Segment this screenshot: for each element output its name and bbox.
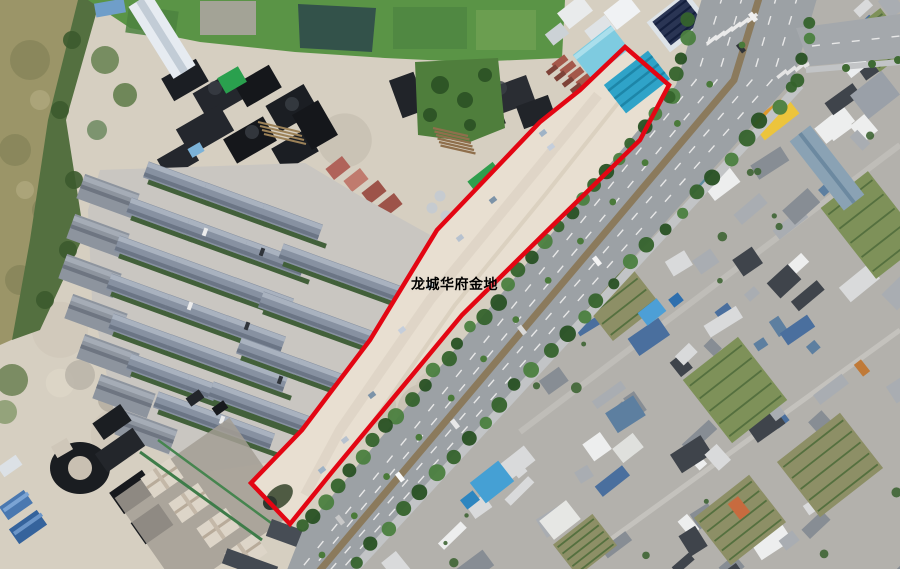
parcel-label: 龙城华府金地 bbox=[411, 274, 498, 294]
aerial-screenshot: 龙城华府金地 bbox=[0, 0, 900, 569]
